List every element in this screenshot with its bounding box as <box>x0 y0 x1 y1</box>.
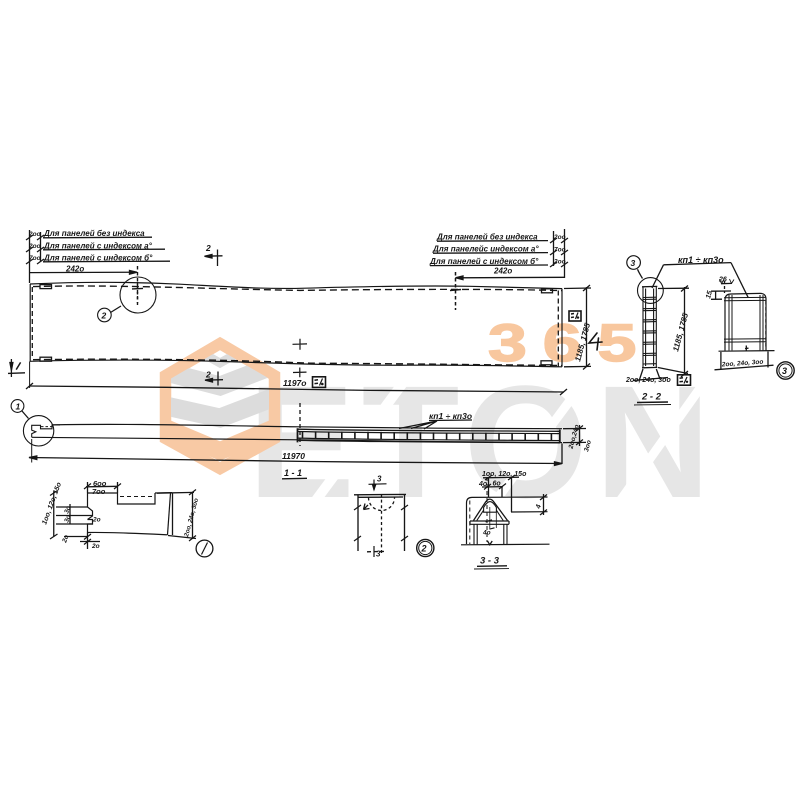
svg-text:2о: 2о <box>92 517 101 524</box>
svg-text:3: 3 <box>377 475 382 484</box>
svg-text:365: 365 <box>488 314 652 373</box>
svg-text:3: 3 <box>782 366 787 376</box>
svg-text:242о: 242о <box>493 267 512 276</box>
svg-text:2 - 2: 2 - 2 <box>641 392 662 403</box>
svg-text:2оо, 24о, 3оо: 2оо, 24о, 3оо <box>625 377 671 384</box>
svg-text:2о: 2о <box>91 543 100 550</box>
svg-text:Для панелей без индекса: Для панелей без индекса <box>43 229 145 238</box>
svg-text:2: 2 <box>205 243 211 253</box>
svg-text:7оо: 7оо <box>92 487 106 496</box>
svg-text:3 - 3: 3 - 3 <box>480 556 500 567</box>
svg-text:2: 2 <box>421 544 427 554</box>
svg-text:1 - 1: 1 - 1 <box>284 468 302 478</box>
svg-text:3: 3 <box>376 550 381 559</box>
svg-text:11970: 11970 <box>282 451 305 461</box>
svg-text:4о: 4о <box>482 530 491 537</box>
svg-text:1197о: 1197о <box>283 378 306 388</box>
svg-text:3: 3 <box>631 258 636 268</box>
svg-text:1: 1 <box>16 402 21 412</box>
svg-text:2: 2 <box>205 370 211 380</box>
svg-text:2: 2 <box>101 311 107 321</box>
